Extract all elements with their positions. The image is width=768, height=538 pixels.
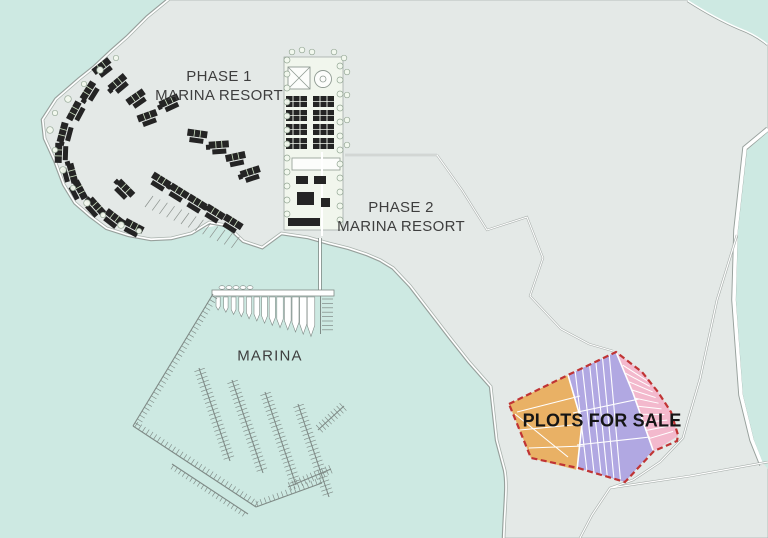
- plots-for-sale-label: PLOTS FOR SALE: [523, 412, 682, 431]
- phase2-label: PHASE 2 MARINA RESORT: [337, 198, 465, 236]
- phase2-label-line1: PHASE 2: [337, 198, 465, 217]
- marina-label: MARINA: [237, 347, 303, 366]
- phase1-label-line1: PHASE 1: [155, 67, 283, 86]
- phase1-label-line2: MARINA RESORT: [155, 86, 283, 105]
- site-plan-map: [0, 0, 768, 538]
- roundabout: [315, 71, 332, 88]
- phase2-label-line2: MARINA RESORT: [337, 217, 465, 236]
- clubhouse: [292, 158, 340, 170]
- phase2-building-strip: [284, 57, 343, 236]
- phase1-label: PHASE 1 MARINA RESORT: [155, 67, 283, 105]
- site-plan-image: PHASE 1 MARINA RESORT PHASE 2 MARINA RES…: [0, 0, 768, 538]
